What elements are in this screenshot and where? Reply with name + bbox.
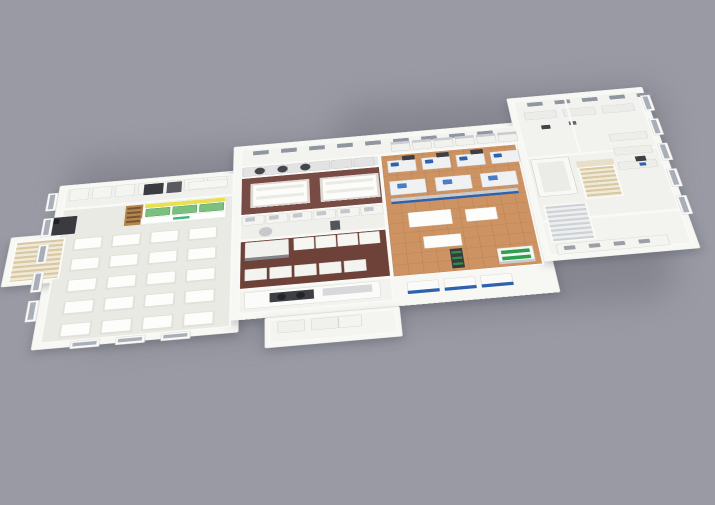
south-kitchen-equipment: [337, 233, 359, 247]
annex-cots: [277, 319, 305, 333]
window-pane: [27, 302, 36, 320]
annex-cabinet: [338, 314, 362, 328]
south-kitchen-equipment: [293, 237, 314, 251]
machine-blue-modules: [391, 162, 399, 166]
galley-equipment-tops: [245, 217, 255, 222]
analyzer: [541, 125, 551, 130]
window-pane: [642, 96, 652, 109]
south-kitchen-equipment: [315, 235, 336, 249]
south-kitchen-counters: [344, 259, 367, 272]
galley-equipment-tops: [293, 213, 303, 218]
cook-line-units: [309, 160, 330, 171]
window-pane: [48, 195, 56, 210]
locker-row: [115, 184, 136, 197]
galley-equipment-tops: [317, 211, 327, 216]
facility-3d-render: [0, 0, 715, 505]
window-pane: [163, 333, 187, 339]
cook-line-units: [331, 159, 352, 170]
window-pane: [679, 197, 690, 213]
cook-line-units: [353, 157, 374, 168]
stand-mixer: [330, 220, 340, 230]
machine-blue-modules: [459, 156, 468, 160]
south-kitchen-counters: [294, 263, 317, 277]
galley-equipment-tops: [364, 207, 374, 212]
window-pane: [651, 120, 661, 134]
annex-cots: [311, 316, 339, 330]
machine-blue-panels: [442, 179, 452, 184]
machine-blue-panels: [488, 175, 498, 180]
gray-appliance: [166, 181, 182, 193]
robot-arm-unit: [635, 156, 647, 162]
window-pane: [118, 337, 142, 343]
window-pane: [669, 170, 680, 185]
window-pane: [33, 273, 42, 290]
galley-equipment-tops: [269, 215, 279, 220]
machine-blue-modules: [425, 159, 434, 163]
south-kitchen-equipment: [359, 231, 381, 245]
window-pane: [660, 144, 670, 158]
window-pane: [43, 220, 51, 236]
window-bays-southwest: [69, 339, 100, 349]
window-bays-southwest: [160, 331, 190, 341]
machine-blue-panels: [397, 183, 407, 188]
window-bays-southwest: [115, 335, 146, 345]
locker-row: [68, 188, 89, 201]
robot-arm-blue: [639, 162, 646, 166]
galley-equipment-tops: [340, 209, 350, 214]
window-pane: [38, 246, 46, 262]
window-pane: [72, 341, 96, 347]
south-kitchen-counters: [269, 266, 292, 280]
south-kitchen-counters: [319, 261, 342, 275]
locker-row: [92, 186, 113, 199]
dark-appliance: [143, 183, 164, 195]
machine-blue-modules: [493, 153, 502, 157]
south-kitchen-counters: [244, 268, 266, 282]
